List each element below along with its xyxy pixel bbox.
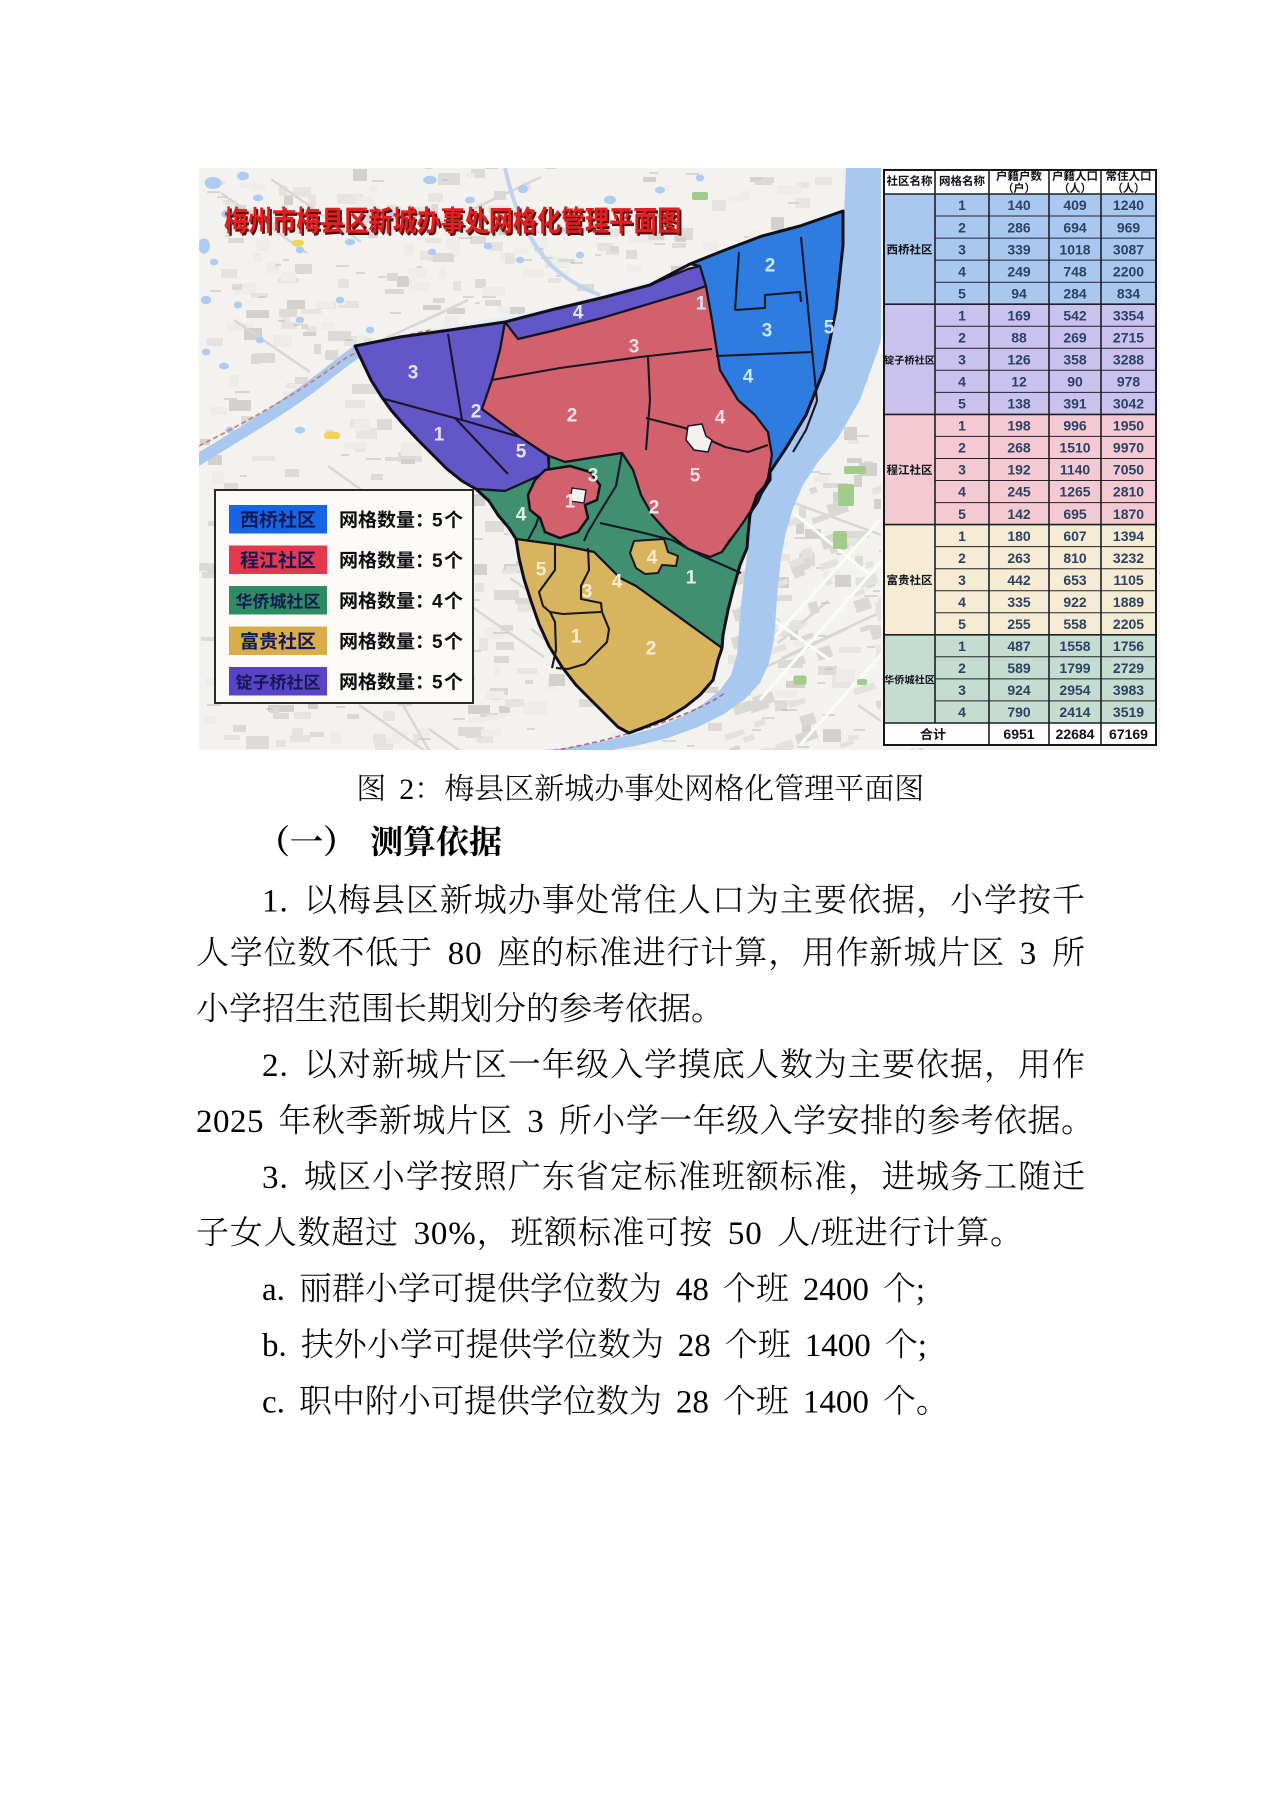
svg-text:2: 2 <box>646 639 657 660</box>
svg-text:138: 138 <box>1007 396 1031 412</box>
svg-text:2025: 2025 <box>196 1104 264 1140</box>
svg-text:3042: 3042 <box>1113 396 1144 412</box>
svg-text:286: 286 <box>1007 219 1031 235</box>
svg-text:192: 192 <box>1007 462 1031 478</box>
svg-text:1: 1 <box>571 627 582 648</box>
svg-text:4: 4 <box>573 303 584 324</box>
svg-text:695: 695 <box>1063 506 1087 522</box>
svg-text:3: 3 <box>408 363 419 384</box>
svg-text:2729: 2729 <box>1113 660 1144 676</box>
svg-text:542: 542 <box>1063 307 1087 323</box>
svg-text:3288: 3288 <box>1113 352 1144 368</box>
svg-text:2: 2 <box>399 773 414 806</box>
svg-text:1: 1 <box>958 197 966 213</box>
svg-text:2.: 2. <box>262 1048 288 1084</box>
svg-text:339: 339 <box>1007 241 1031 257</box>
svg-text:1: 1 <box>434 425 445 446</box>
svg-text:269: 269 <box>1063 330 1087 346</box>
svg-text:3: 3 <box>958 462 966 478</box>
svg-text:4: 4 <box>612 572 623 593</box>
svg-text:810: 810 <box>1063 550 1087 566</box>
svg-text:653: 653 <box>1063 572 1087 588</box>
svg-text:142: 142 <box>1007 506 1031 522</box>
svg-text:3: 3 <box>958 352 966 368</box>
svg-text:263: 263 <box>1007 550 1031 566</box>
svg-text:2: 2 <box>649 498 660 519</box>
svg-text:5: 5 <box>432 511 443 532</box>
svg-text:1400: 1400 <box>803 1384 869 1420</box>
svg-text:255: 255 <box>1007 616 1031 632</box>
svg-text:5: 5 <box>432 673 443 694</box>
svg-text:268: 268 <box>1007 440 1031 456</box>
svg-text:50: 50 <box>728 1216 762 1252</box>
svg-text:1400: 1400 <box>805 1328 871 1364</box>
svg-text:6951: 6951 <box>1003 726 1034 742</box>
svg-text:4: 4 <box>432 592 443 613</box>
svg-text:3: 3 <box>762 321 773 342</box>
svg-text:140: 140 <box>1007 197 1031 213</box>
svg-text:442: 442 <box>1007 572 1031 588</box>
svg-text:7050: 7050 <box>1113 462 1144 478</box>
svg-text:2: 2 <box>958 440 966 456</box>
svg-text:198: 198 <box>1007 418 1031 434</box>
svg-text:1: 1 <box>958 638 966 654</box>
svg-text:180: 180 <box>1007 528 1031 544</box>
svg-text:3: 3 <box>1020 936 1037 972</box>
svg-text:88: 88 <box>1011 330 1027 346</box>
svg-text:5: 5 <box>958 506 966 522</box>
svg-text:391: 391 <box>1063 396 1087 412</box>
svg-text:3: 3 <box>958 241 966 257</box>
svg-text:2: 2 <box>567 406 578 427</box>
svg-text:2: 2 <box>765 256 776 277</box>
svg-text:487: 487 <box>1007 638 1031 654</box>
svg-text:2: 2 <box>958 219 966 235</box>
svg-text:3: 3 <box>527 1104 544 1140</box>
svg-text:4: 4 <box>516 505 527 526</box>
svg-text:3: 3 <box>582 582 593 603</box>
svg-text:4: 4 <box>715 408 726 429</box>
svg-text:1756: 1756 <box>1113 638 1144 654</box>
svg-text:245: 245 <box>1007 484 1031 500</box>
svg-text:80: 80 <box>448 936 482 972</box>
svg-text:c.: c. <box>262 1384 285 1420</box>
svg-text:5: 5 <box>536 560 547 581</box>
svg-text:4: 4 <box>958 704 966 720</box>
svg-text:2715: 2715 <box>1113 330 1144 346</box>
svg-text:3519: 3519 <box>1113 704 1144 720</box>
svg-text:358: 358 <box>1063 352 1087 368</box>
svg-text:5: 5 <box>824 318 835 339</box>
svg-text:3983: 3983 <box>1113 682 1144 698</box>
svg-text:;: ; <box>916 1272 925 1308</box>
svg-text:67169: 67169 <box>1109 726 1148 742</box>
svg-text:3: 3 <box>958 682 966 698</box>
svg-text:9970: 9970 <box>1113 440 1144 456</box>
svg-text:5: 5 <box>516 442 527 463</box>
svg-text:4: 4 <box>958 374 966 390</box>
svg-text:a.: a. <box>262 1272 285 1308</box>
svg-text:30%: 30% <box>414 1216 476 1252</box>
svg-text:589: 589 <box>1007 660 1031 676</box>
svg-text:4: 4 <box>958 484 966 500</box>
svg-text:1105: 1105 <box>1113 572 1144 588</box>
svg-text:1799: 1799 <box>1059 660 1090 676</box>
svg-text:1889: 1889 <box>1113 594 1144 610</box>
svg-text:5: 5 <box>958 616 966 632</box>
svg-text:1: 1 <box>686 568 697 589</box>
svg-text:1: 1 <box>958 307 966 323</box>
svg-text:3087: 3087 <box>1113 241 1144 257</box>
svg-text:3: 3 <box>588 466 599 487</box>
svg-text:409: 409 <box>1063 197 1087 213</box>
svg-text:2414: 2414 <box>1059 704 1090 720</box>
svg-text:169: 169 <box>1007 307 1031 323</box>
svg-text:1: 1 <box>958 418 966 434</box>
svg-text:/: / <box>811 1216 821 1252</box>
svg-text:28: 28 <box>678 1328 711 1364</box>
svg-text:5: 5 <box>432 632 443 653</box>
svg-text:249: 249 <box>1007 263 1031 279</box>
svg-text:2205: 2205 <box>1113 616 1144 632</box>
svg-text:1018: 1018 <box>1059 241 1090 257</box>
svg-text:90: 90 <box>1067 374 1083 390</box>
svg-text:694: 694 <box>1063 219 1087 235</box>
svg-text:94: 94 <box>1011 285 1027 301</box>
svg-text:12: 12 <box>1011 374 1027 390</box>
svg-text:748: 748 <box>1063 263 1087 279</box>
svg-text:5: 5 <box>958 396 966 412</box>
svg-text:978: 978 <box>1117 374 1141 390</box>
svg-text:2: 2 <box>471 402 482 423</box>
svg-text:1510: 1510 <box>1059 440 1090 456</box>
svg-text:1.: 1. <box>262 883 288 919</box>
svg-text:924: 924 <box>1007 682 1031 698</box>
svg-text:1394: 1394 <box>1113 528 1144 544</box>
svg-text:;: ; <box>918 1328 927 1364</box>
svg-text:3354: 3354 <box>1113 307 1144 323</box>
svg-text:4: 4 <box>958 263 966 279</box>
svg-text:1140: 1140 <box>1060 462 1091 478</box>
svg-text:5: 5 <box>432 551 443 572</box>
svg-text:b.: b. <box>262 1328 287 1364</box>
svg-text:1: 1 <box>958 528 966 544</box>
svg-text:790: 790 <box>1007 704 1031 720</box>
svg-text:5: 5 <box>690 466 701 487</box>
svg-text:1870: 1870 <box>1113 506 1144 522</box>
svg-text:28: 28 <box>676 1384 709 1420</box>
svg-text:1: 1 <box>696 294 707 315</box>
svg-text:1950: 1950 <box>1113 418 1144 434</box>
svg-text:4: 4 <box>743 367 754 388</box>
svg-text:3: 3 <box>629 337 640 358</box>
svg-text:3.: 3. <box>262 1160 288 1196</box>
svg-text:284: 284 <box>1063 285 1087 301</box>
svg-text:1240: 1240 <box>1113 197 1144 213</box>
svg-text:2810: 2810 <box>1113 484 1144 500</box>
svg-text:4: 4 <box>958 594 966 610</box>
svg-text:2954: 2954 <box>1059 682 1090 698</box>
svg-text:22684: 22684 <box>1056 726 1095 742</box>
svg-text:3: 3 <box>958 572 966 588</box>
svg-text:1265: 1265 <box>1059 484 1090 500</box>
svg-text:2: 2 <box>958 550 966 566</box>
svg-text:922: 922 <box>1063 594 1087 610</box>
svg-text:969: 969 <box>1117 219 1141 235</box>
svg-text:1: 1 <box>565 492 576 513</box>
svg-text:607: 607 <box>1063 528 1087 544</box>
svg-text:48: 48 <box>676 1272 709 1308</box>
svg-text:2: 2 <box>958 330 966 346</box>
svg-text:834: 834 <box>1117 285 1141 301</box>
svg-text:2: 2 <box>958 660 966 676</box>
svg-text:1558: 1558 <box>1059 638 1090 654</box>
svg-text:558: 558 <box>1063 616 1087 632</box>
svg-text:126: 126 <box>1007 352 1031 368</box>
svg-text:2200: 2200 <box>1113 263 1144 279</box>
svg-text:5: 5 <box>958 285 966 301</box>
svg-text:4: 4 <box>647 548 658 569</box>
svg-text:2400: 2400 <box>803 1272 869 1308</box>
svg-text:335: 335 <box>1007 594 1031 610</box>
svg-text:996: 996 <box>1063 418 1087 434</box>
svg-text:3232: 3232 <box>1113 550 1144 566</box>
